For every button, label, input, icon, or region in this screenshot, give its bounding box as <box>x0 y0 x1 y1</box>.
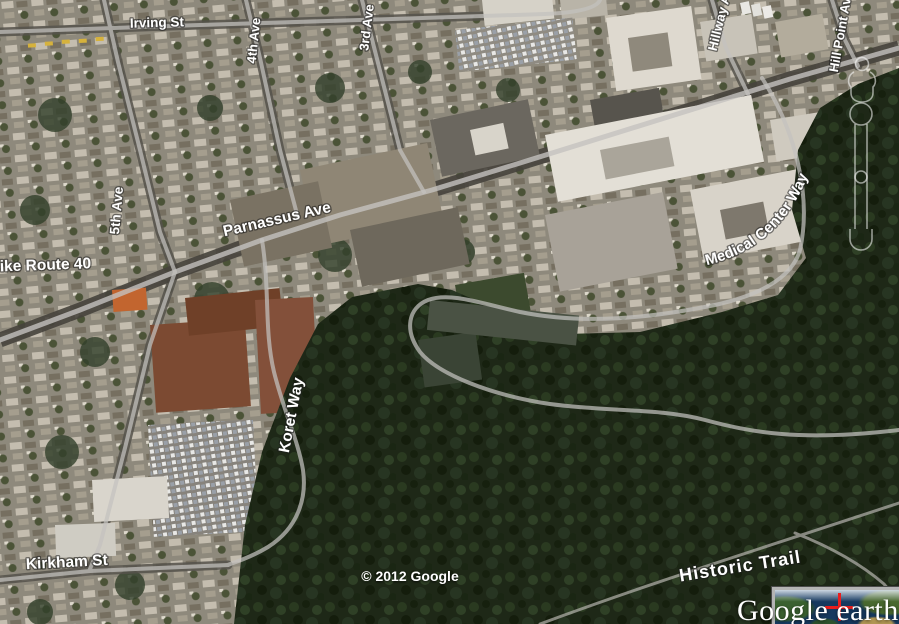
copyright-notice: © 2012 Google <box>340 568 480 584</box>
street-label-irving-st: Irving St <box>130 14 185 30</box>
aerial-map-svg: Irving St 3rd Ave 4th Ave 5th Ave Hillwa… <box>0 0 899 624</box>
aerial-imagery <box>0 0 899 624</box>
earth-map-viewport[interactable]: Irving St 3rd Ave 4th Ave 5th Ave Hillwa… <box>0 0 899 624</box>
google-earth-watermark: Google earth <box>737 596 899 624</box>
